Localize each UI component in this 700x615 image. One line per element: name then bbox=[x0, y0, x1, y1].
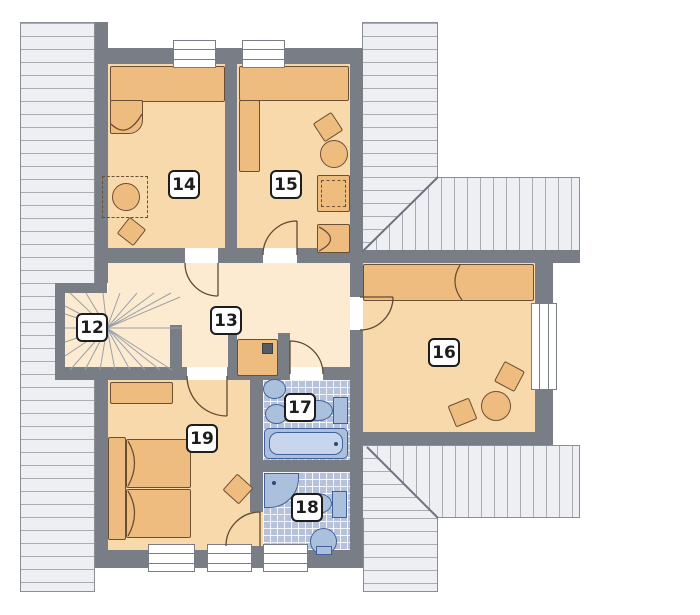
wall-bath-divider bbox=[250, 460, 363, 472]
wall-room16-top bbox=[350, 250, 580, 263]
bathtub-drain-bath17 bbox=[334, 442, 338, 446]
wall-bottom-a bbox=[95, 550, 148, 568]
wall-right-upper bbox=[350, 64, 363, 263]
wall-bottom-b bbox=[195, 550, 207, 568]
window-right-room16 bbox=[531, 303, 557, 390]
room-label-18: 18 bbox=[291, 493, 323, 522]
wall-closet-left bbox=[228, 333, 237, 367]
room-label-13: 13 bbox=[210, 306, 242, 335]
room-label-14: 14 bbox=[168, 170, 200, 199]
room-number: 17 bbox=[288, 398, 312, 418]
window-top-2 bbox=[242, 40, 285, 68]
wall-top bbox=[95, 48, 363, 64]
roof-eave-top-right-vertical bbox=[362, 22, 438, 178]
bed-room15 bbox=[239, 66, 349, 101]
bed-headboard-room19 bbox=[108, 437, 126, 540]
wall-right-mid-a bbox=[350, 263, 363, 297]
room-label-17: 17 bbox=[284, 393, 316, 422]
window-bottom-2 bbox=[207, 544, 252, 572]
wall-room16-bottom bbox=[350, 432, 553, 445]
mattress-b-room19 bbox=[126, 489, 191, 538]
wall-hall-top-a bbox=[108, 248, 185, 263]
room-number: 19 bbox=[190, 429, 214, 449]
wardrobe2-room15 bbox=[317, 224, 350, 253]
wardrobe-room15 bbox=[239, 100, 260, 172]
room-number: 18 bbox=[295, 498, 319, 518]
mattress-a-room19 bbox=[126, 439, 191, 488]
roof-eave-bottom-right-vertical bbox=[363, 517, 438, 592]
room-number: 12 bbox=[80, 318, 104, 338]
wall-divider-14-15 bbox=[225, 64, 237, 248]
round-table-room16 bbox=[481, 391, 511, 421]
toilet-tank-bath17 bbox=[333, 397, 348, 424]
room-number: 16 bbox=[432, 343, 456, 363]
room-label-16: 16 bbox=[428, 338, 460, 367]
washbasin-1-bath17 bbox=[263, 379, 286, 399]
bed-room14 bbox=[110, 66, 225, 102]
bed-room16 bbox=[363, 264, 534, 301]
desk-zone-room15 bbox=[321, 180, 346, 207]
toilet-tank-bath18 bbox=[332, 491, 347, 518]
room-number: 13 bbox=[214, 311, 238, 331]
bathtub-inner-bath17 bbox=[269, 432, 343, 455]
washbasin-pedestal-bath18 bbox=[316, 546, 332, 555]
shower-drain-bath18 bbox=[272, 481, 276, 485]
wall-stair-bottom bbox=[55, 367, 187, 380]
wall-left-upper bbox=[95, 22, 108, 283]
duct-closet bbox=[262, 343, 273, 354]
room-number: 15 bbox=[274, 175, 298, 195]
wall-stair-right bbox=[170, 325, 182, 370]
wall-left-lower bbox=[95, 370, 108, 568]
window-bottom-1 bbox=[148, 544, 195, 572]
wall-hall-top-b bbox=[218, 248, 263, 263]
floor-plan: 12 13 14 15 16 17 18 19 bbox=[0, 0, 700, 615]
door-18-threshold bbox=[250, 512, 263, 546]
window-top-1 bbox=[173, 40, 216, 68]
room-label-15: 15 bbox=[270, 170, 302, 199]
round-table-room14 bbox=[112, 183, 140, 211]
wall-right-mid-b bbox=[350, 330, 363, 445]
wall-room19-bath-a bbox=[250, 380, 263, 512]
wall-closet-right bbox=[278, 333, 290, 367]
window-bottom-3 bbox=[263, 544, 308, 572]
room-number: 14 bbox=[172, 175, 196, 195]
dresser-room19 bbox=[110, 382, 173, 404]
wall-room16-right-a bbox=[535, 263, 553, 305]
room-label-19: 19 bbox=[186, 424, 218, 453]
room-label-12: 12 bbox=[76, 313, 108, 342]
wall-stair-left bbox=[55, 283, 65, 380]
round-table-room15 bbox=[320, 140, 348, 168]
bed-side-room14 bbox=[110, 100, 143, 134]
